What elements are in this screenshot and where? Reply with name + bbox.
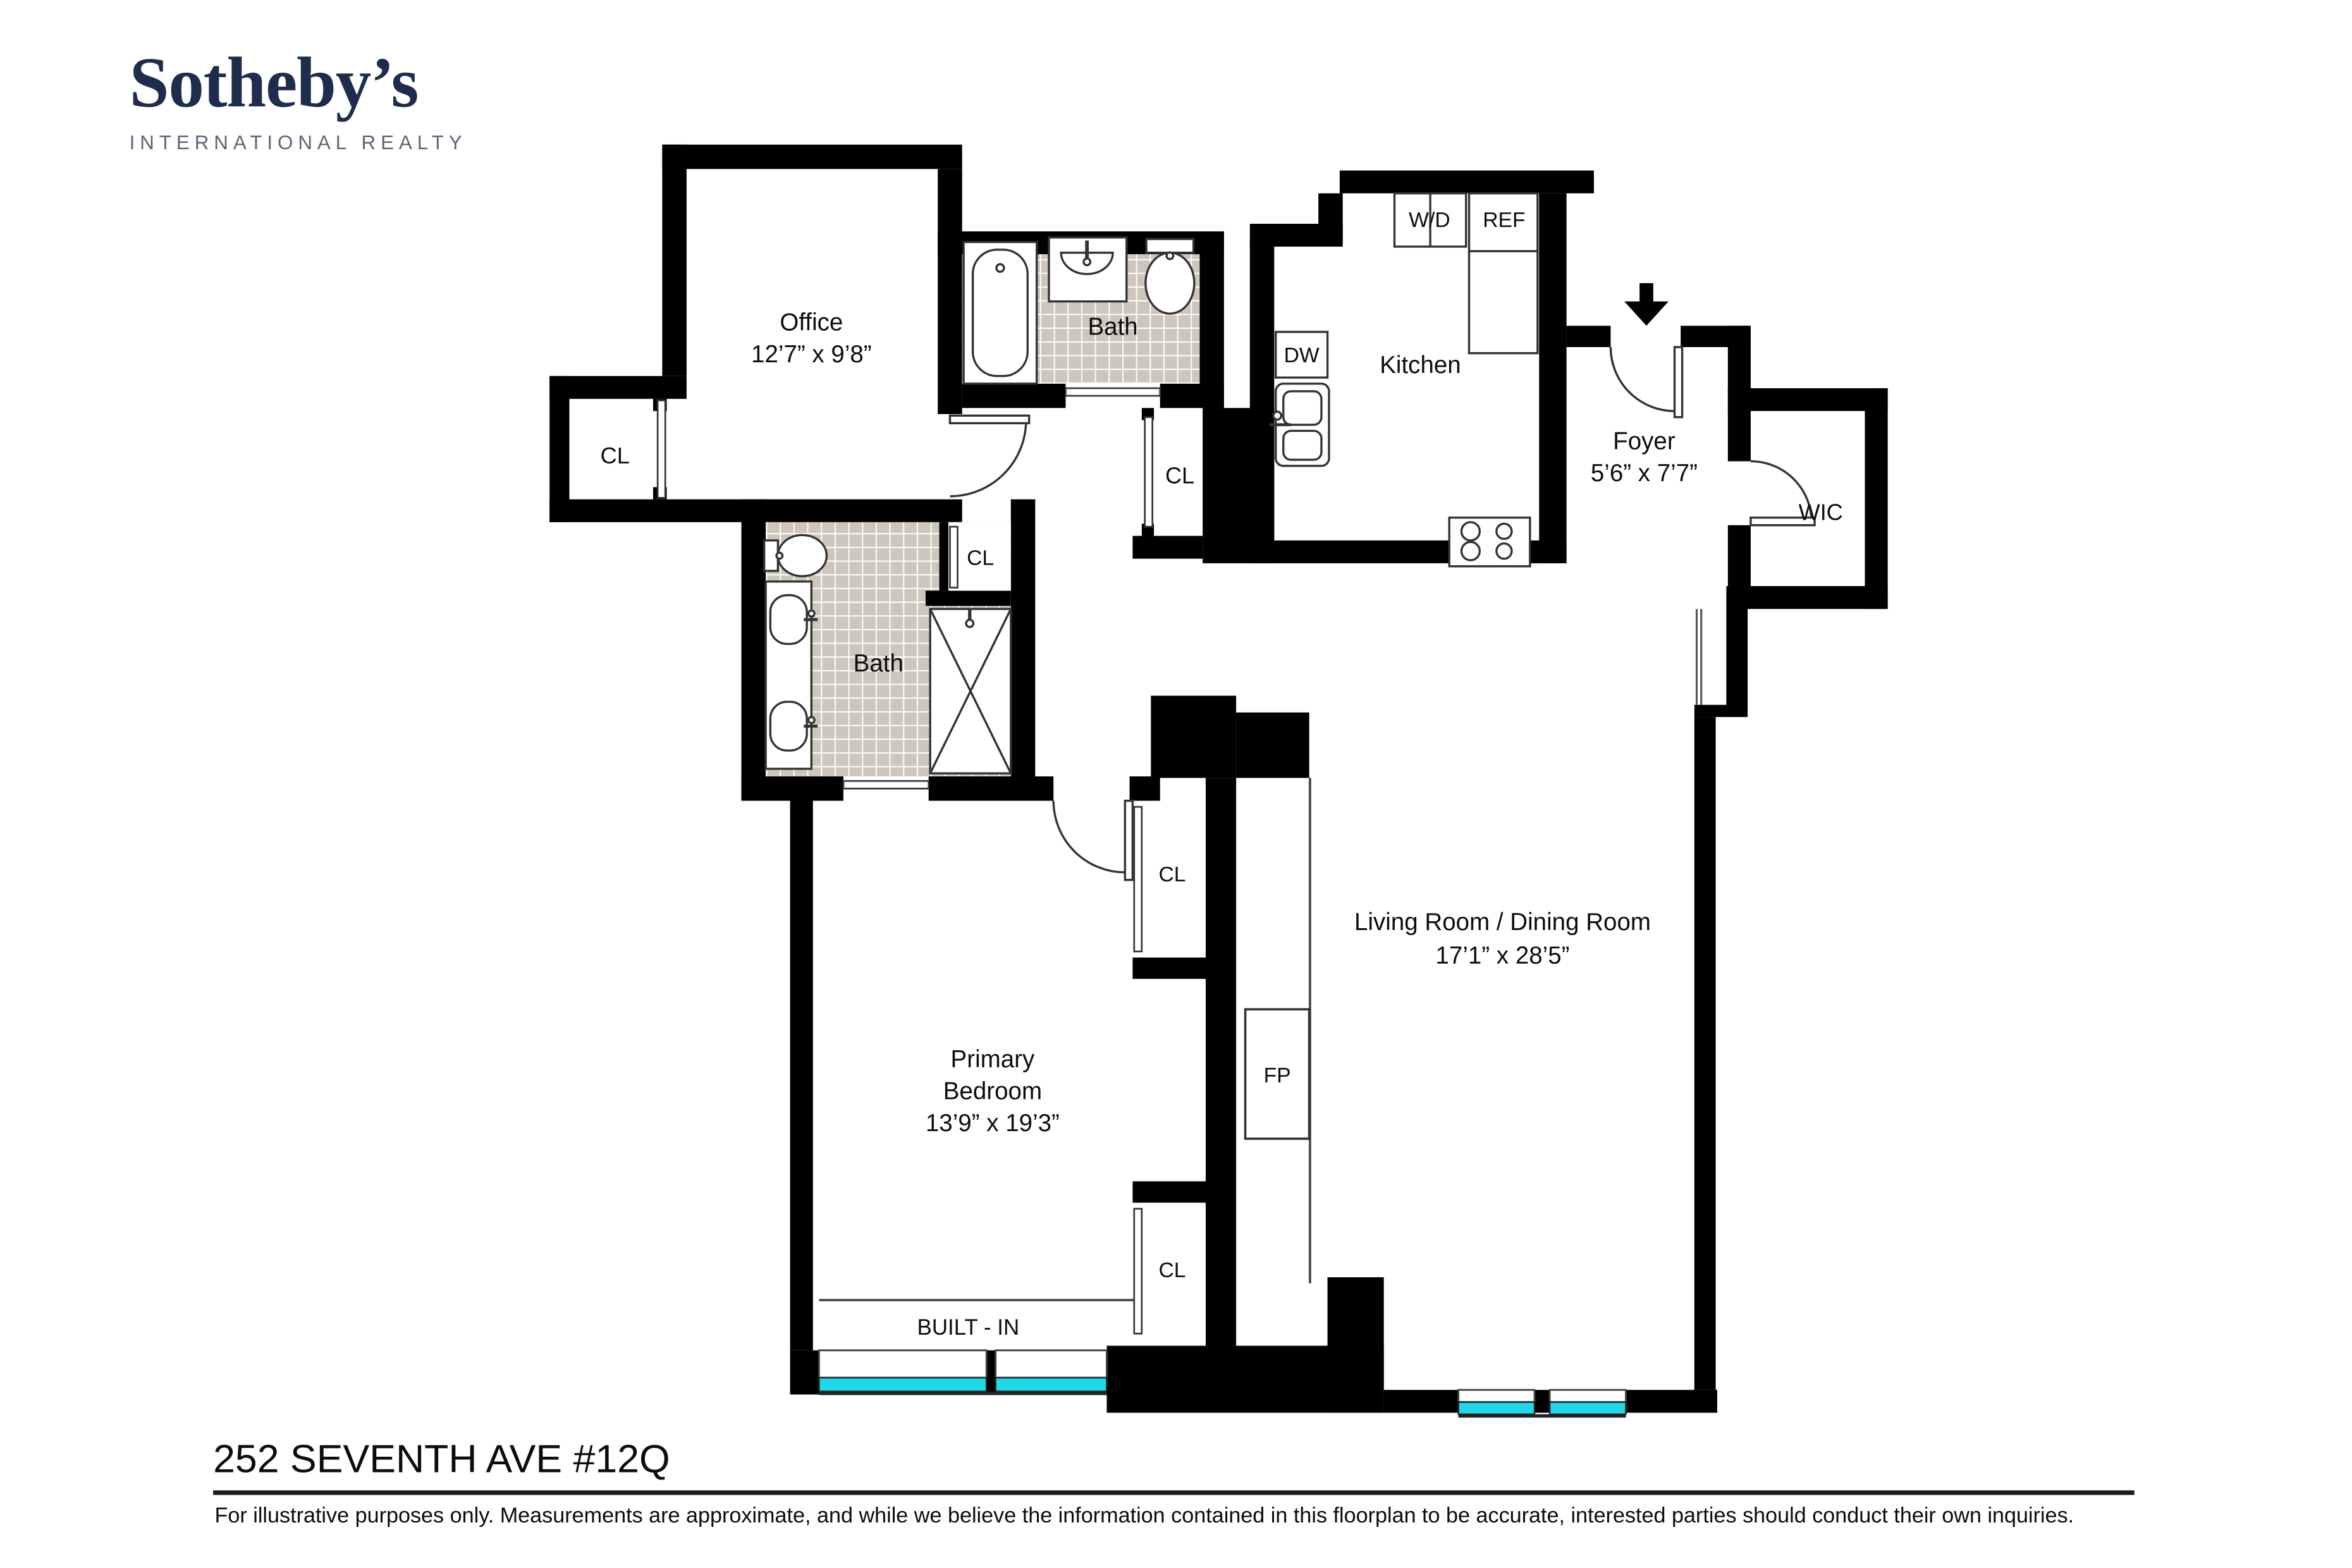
bedroom-label-line2: Bedroom	[943, 1081, 1042, 1106]
built-in-label: BUILT - IN	[917, 1318, 1020, 1340]
closet-kitchen-label: CL	[1165, 465, 1194, 488]
bedroom-label-line1: Primary	[951, 1049, 1035, 1074]
floorplan-page: Sotheby’s INTERNATIONAL REALTY	[0, 0, 2352, 1568]
room-labels: Office 12’7” x 9’8” Bath Kitchen W/D REF…	[0, 0, 2352, 1568]
washer-dryer-label: W/D	[1409, 209, 1450, 230]
closet-2-label: CL	[1158, 1259, 1185, 1280]
wic-label: WIC	[1799, 501, 1843, 524]
foyer-dims: 5’6” x 7’7”	[1591, 463, 1698, 487]
footer-divider	[213, 1490, 2135, 1494]
foyer-label: Foyer	[1613, 431, 1675, 455]
kitchen-label: Kitchen	[1380, 355, 1461, 379]
bedroom-dims: 13’9” x 19’3”	[926, 1113, 1060, 1137]
dishwasher-label: DW	[1284, 344, 1320, 365]
footer-disclaimer: For illustrative purposes only. Measurem…	[214, 1504, 2074, 1529]
living-room-dims: 17’1” x 28’5”	[1435, 945, 1569, 970]
office-label: Office	[780, 312, 843, 337]
closet-office-label: CL	[601, 445, 630, 468]
fireplace-label: FP	[1264, 1064, 1291, 1086]
office-dims: 12’7” x 9’8”	[751, 344, 872, 369]
bath-primary-label: Bath	[854, 653, 903, 678]
listing-address-title: 252 SEVENTH AVE #12Q	[213, 1436, 670, 1483]
closet-1-label: CL	[1158, 863, 1185, 885]
closet-bath-label: CL	[967, 546, 994, 568]
refrigerator-label: REF	[1483, 209, 1525, 230]
living-room-label: Living Room / Dining Room	[1354, 912, 1651, 936]
bath-top-label: Bath	[1087, 317, 1137, 341]
